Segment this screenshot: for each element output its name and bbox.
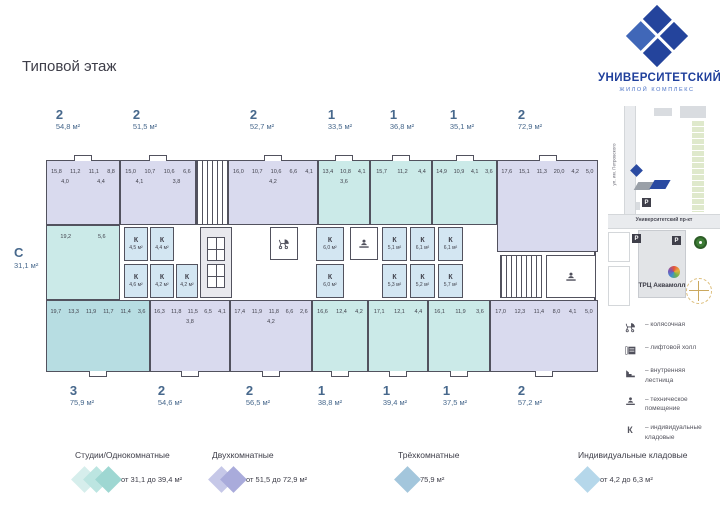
room-area-value: 16,3 xyxy=(154,310,165,316)
map-building xyxy=(608,266,630,306)
storage-unit[interactable]: К6,1 м² xyxy=(410,227,435,261)
rooms-count: 1 xyxy=(390,108,414,121)
diamond-swatches xyxy=(578,470,590,489)
compass-icon xyxy=(686,278,712,304)
room-area-value: 12,3 xyxy=(515,310,526,316)
brand-subtitle: ЖИЛОЙ КОМПЛЕКС xyxy=(598,87,716,93)
type-legend-item: Двухкомнатныеот 51,5 до 72,9 м² xyxy=(212,450,307,489)
storage-area: 6,0 м² xyxy=(323,283,336,288)
room-area-value: 4,0 xyxy=(61,180,69,186)
type-legend-item: Индивидуальные кладовыеот 4,2 до 6,3 м² xyxy=(578,450,687,489)
apartment-label-bottom: 137,5 м² xyxy=(443,384,467,407)
elevator-icon xyxy=(622,343,638,357)
storage-unit[interactable]: К4,5 м² xyxy=(124,227,148,261)
type-legend-range: 75,9 м² xyxy=(420,475,444,484)
apartment-label-top: 254,8 м² xyxy=(56,108,80,131)
room-area-value: 16,1 xyxy=(434,310,445,316)
room-area-value: 10,6 xyxy=(164,170,175,176)
room-area-value: 17,4 xyxy=(234,310,245,316)
room-area-value: 8,8 xyxy=(107,170,115,176)
room-area-value: 10,7 xyxy=(145,170,156,176)
room-area-value: 8,0 xyxy=(553,310,561,316)
legend-text: – колясочная xyxy=(645,320,711,330)
room-area-value: 12,1 xyxy=(394,310,405,316)
apartment-label-bottom: 254,6 м² xyxy=(158,384,182,407)
storage-letter: К xyxy=(392,274,396,281)
apartment-area: 38,8 м² xyxy=(318,399,342,407)
apartment-area: 37,5 м² xyxy=(443,399,467,407)
rooms-count: 3 xyxy=(70,384,94,397)
diamond-swatch-icon xyxy=(574,466,601,493)
apartment-label-top: 136,8 м² xyxy=(390,108,414,131)
type-legend-title: Трёхкомнатные xyxy=(398,450,459,460)
apartment-unit[interactable]: 15,010,710,66,64,13,8 xyxy=(120,160,196,225)
balcony xyxy=(535,371,553,377)
map-street-vertical-label: ул. им. Петровского xyxy=(612,130,617,200)
room-area-value: 16,6 xyxy=(317,310,328,316)
balcony xyxy=(392,155,410,161)
apartment-label-bottom: 256,5 м² xyxy=(246,384,270,407)
room-area-value: 4,1 xyxy=(136,180,144,186)
room-area-value: 5,6 xyxy=(98,235,106,241)
apartment-unit[interactable]: 13,410,84,13,6 xyxy=(318,160,370,225)
room-area-value: 4,2 xyxy=(267,320,275,326)
mall-label: ТРЦ Аквамолл xyxy=(630,282,694,289)
room-area-value: 19,7 xyxy=(51,310,62,316)
balcony xyxy=(335,155,353,161)
stroller-icon xyxy=(622,320,638,334)
apartment-unit[interactable]: 19,25,6 xyxy=(46,225,120,300)
storage-letter: К xyxy=(328,274,332,281)
balcony xyxy=(331,371,349,377)
room-area-value: 3,8 xyxy=(186,320,194,326)
diamond-swatches xyxy=(398,470,410,489)
map-building xyxy=(636,202,640,210)
apartment-area: 57,2 м² xyxy=(518,399,542,407)
room-area-value: 6,6 xyxy=(286,310,294,316)
tech-room xyxy=(350,227,378,260)
room-area-value: 11,9 xyxy=(252,310,262,316)
type-legend-row: от 4,2 до 6,3 м² xyxy=(578,470,687,489)
map-street-horizontal-label: Университетский пр-кт xyxy=(608,217,720,223)
rooms-count: 2 xyxy=(56,108,80,121)
balcony xyxy=(389,371,407,377)
stairs-glyph xyxy=(624,367,637,380)
location-map[interactable]: ул. им. Петровского P Университетский пр… xyxy=(608,106,720,312)
balcony xyxy=(74,155,92,161)
room-area-value: 6,5 xyxy=(204,310,212,316)
plan-legend: – колясочная– лифтовой холл– внутренняя … xyxy=(622,320,718,452)
map-building xyxy=(608,232,630,262)
type-legend-title: Индивидуальные кладовые xyxy=(578,450,687,460)
stroller-icon xyxy=(277,237,291,251)
rooms-count: 1 xyxy=(328,108,352,121)
legend-row: – лифтовой холл xyxy=(622,343,718,357)
room-area-value: 10,7 xyxy=(252,170,263,176)
rooms-count: 1 xyxy=(450,108,474,121)
tech-room xyxy=(546,255,596,298)
apartment-unit[interactable]: 16,010,710,66,64,14,2 xyxy=(228,160,318,225)
type-legend-range: от 4,2 до 6,3 м² xyxy=(600,475,653,484)
apartment-unit[interactable]: 16,111,93,6 xyxy=(428,300,490,372)
apartment-area: 52,7 м² xyxy=(250,123,274,131)
fuel-station-icon xyxy=(694,236,707,249)
room-area-value: 13,4 xyxy=(322,170,333,176)
map-green-strip xyxy=(692,120,704,212)
apartment-unit[interactable]: 14,910,94,13,6 xyxy=(432,160,497,225)
room-area-value: 3,6 xyxy=(340,180,348,186)
storage-area: 4,4 м² xyxy=(155,246,168,251)
apartment-area: 35,1 м² xyxy=(450,123,474,131)
room-area-value: 11,9 xyxy=(86,310,96,316)
balcony xyxy=(264,155,282,161)
storage-letter: К xyxy=(134,237,138,244)
elevator-glyph xyxy=(624,344,637,357)
rooms-count: 2 xyxy=(133,108,157,121)
balcony xyxy=(456,155,474,161)
storage-area: 4,2 м² xyxy=(180,283,193,288)
room-area-value: 4,1 xyxy=(471,170,479,176)
tech-icon xyxy=(622,395,638,409)
apartment-label-top: 252,7 м² xyxy=(250,108,274,131)
room-area-value: 6,6 xyxy=(183,170,191,176)
room-area-value: 4,4 xyxy=(97,180,105,186)
apartment-unit[interactable]: 17,112,14,4 xyxy=(368,300,428,372)
stairs-block xyxy=(500,255,542,298)
storage-unit[interactable]: К5,2 м² xyxy=(410,264,435,298)
room-area-value: 4,2 xyxy=(269,180,277,186)
brand-diamond-icon xyxy=(626,5,688,67)
room-area-value: 12,4 xyxy=(336,310,347,316)
apartment-area: 33,5 м² xyxy=(328,123,352,131)
room-area-value: 10,6 xyxy=(271,170,282,176)
storage-area: 4,6 м² xyxy=(129,283,142,288)
room-area-value: 11,5 xyxy=(188,310,198,316)
apartment-unit[interactable]: 17,411,911,86,62,64,2 xyxy=(230,300,312,372)
apartment-area: 51,5 м² xyxy=(133,123,157,131)
storage-area: 4,2 м² xyxy=(155,283,168,288)
room-area-value: 11,7 xyxy=(103,310,113,316)
storage-area: 5,2 м² xyxy=(416,283,429,288)
balcony xyxy=(262,371,280,377)
legend-text: – индивидуальные кладовые xyxy=(645,423,711,443)
stroller-glyph xyxy=(624,321,637,334)
room-area-value: 4,1 xyxy=(218,310,226,316)
storage-unit[interactable]: К5,3 м² xyxy=(382,264,407,298)
apartment-unit[interactable]: 17,615,111,320,04,25,0 xyxy=(497,160,598,252)
room-area-value: 11,4 xyxy=(121,310,131,316)
diamond-swatches xyxy=(75,470,111,489)
type-legend-row: от 31,1 до 39,4 м² xyxy=(75,470,182,489)
rooms-count: 1 xyxy=(443,384,467,397)
storage-area: 6,1 м² xyxy=(416,246,429,251)
room-area-value: 17,0 xyxy=(495,310,506,316)
rooms-count: 1 xyxy=(383,384,407,397)
page: Типовой этаж УНИВЕРСИТЕТСКИЙ ЖИЛОЙ КОМПЛ… xyxy=(0,0,720,508)
room-area-value: 11,8 xyxy=(171,310,181,316)
room-area-value: 11,2 xyxy=(397,170,407,176)
room-area-value: 5,0 xyxy=(585,310,593,316)
storage-area: 5,1 м² xyxy=(388,246,401,251)
parking-icon: P xyxy=(642,198,651,207)
room-area-value: 15,1 xyxy=(519,170,530,176)
rooms-count: 2 xyxy=(518,108,542,121)
type-legend-title: Двухкомнатные xyxy=(212,450,307,460)
room-area-value: 16,0 xyxy=(233,170,244,176)
type-legend-range: от 51,5 до 72,9 м² xyxy=(246,475,307,484)
brand-name: УНИВЕРСИТЕТСКИЙ xyxy=(598,72,716,85)
map-complex-marker[interactable] xyxy=(632,164,672,194)
room-area-value: 11,8 xyxy=(269,310,279,316)
room-area-value: 4,4 xyxy=(415,310,423,316)
storage-letter: К xyxy=(448,237,452,244)
apartment-area: 54,8 м² xyxy=(56,123,80,131)
legend-row: К– индивидуальные кладовые xyxy=(622,423,718,443)
diamond-swatch-icon xyxy=(394,466,421,493)
room-area-value: 15,0 xyxy=(125,170,136,176)
entry-stairwell xyxy=(196,160,228,225)
apartment-unit[interactable]: 15,711,24,4 xyxy=(370,160,432,225)
balcony xyxy=(181,371,199,377)
storage-letter: К xyxy=(448,274,452,281)
mall-logo-icon xyxy=(668,266,680,278)
room-area-value: 14,9 xyxy=(436,170,447,176)
storage-unit[interactable]: К6,1 м² xyxy=(438,227,463,261)
storage-unit[interactable]: К4,6 м² xyxy=(124,264,148,298)
room-area-value: 3,6 xyxy=(476,310,484,316)
apartment-label-top: 135,1 м² xyxy=(450,108,474,131)
page-title: Типовой этаж xyxy=(22,58,116,75)
apartment-label-top: 133,5 м² xyxy=(328,108,352,131)
room-area-value: 17,6 xyxy=(501,170,512,176)
storage-unit[interactable]: К4,4 м² xyxy=(150,227,174,261)
storage-letter: К xyxy=(160,274,164,281)
storage-unit[interactable]: К4,2 м² xyxy=(176,264,198,298)
storage-letter: К xyxy=(328,237,332,244)
storage-letter: К xyxy=(420,237,424,244)
storage-unit[interactable]: К4,2 м² xyxy=(150,264,174,298)
room-area-value: 11,3 xyxy=(537,170,547,176)
elevator-icon xyxy=(207,237,225,261)
apartment-unit[interactable]: 16,311,811,56,54,13,8 xyxy=(150,300,230,372)
room-area-value: 13,3 xyxy=(68,310,79,316)
rooms-count: 2 xyxy=(250,108,274,121)
apartment-unit[interactable]: 15,811,211,18,84,04,4 xyxy=(46,160,120,225)
apartment-label-bottom: 375,9 м² xyxy=(70,384,94,407)
rooms-count: 1 xyxy=(318,384,342,397)
type-legend-range: от 31,1 до 39,4 м² xyxy=(121,475,182,484)
stroller-room xyxy=(270,227,298,260)
rooms-count: 2 xyxy=(518,384,542,397)
type-legend-item: Трёхкомнатные75,9 м² xyxy=(398,450,459,489)
type-legend-row: 75,9 м² xyxy=(398,470,459,489)
floor-plan[interactable]: 15,811,211,18,84,04,415,010,710,66,64,13… xyxy=(30,160,600,372)
apartment-label-top: 251,5 м² xyxy=(133,108,157,131)
apartment-unit[interactable]: 16,612,44,2 xyxy=(312,300,368,372)
storage-area: 4,5 м² xyxy=(129,246,142,251)
complex-diamond-icon xyxy=(630,164,643,177)
type-legend-row: от 51,5 до 72,9 м² xyxy=(212,470,307,489)
legend-text: – лифтовой холл xyxy=(645,343,711,353)
storage-letter: К xyxy=(392,237,396,244)
tech-icon xyxy=(357,237,371,251)
tech-icon xyxy=(564,270,578,284)
apartment-area: 54,6 м² xyxy=(158,399,182,407)
apartment-area: 36,8 м² xyxy=(390,123,414,131)
type-legend-item: Студии/Однокомнатныеот 31,1 до 39,4 м² xyxy=(75,450,182,489)
stairs-icon xyxy=(622,366,638,380)
apartment-area: 75,9 м² xyxy=(70,399,94,407)
room-area-value: 3,6 xyxy=(138,310,146,316)
room-area-value: 10,8 xyxy=(340,170,351,176)
parking-icon: P xyxy=(672,236,681,245)
room-area-value: 4,1 xyxy=(305,170,313,176)
apartment-area: 39,4 м² xyxy=(383,399,407,407)
room-area-value: 20,0 xyxy=(554,170,565,176)
tech-glyph xyxy=(624,395,637,408)
room-area-value: 11,1 xyxy=(89,170,99,176)
room-area-value: 19,2 xyxy=(60,235,71,241)
storage-letter: К xyxy=(185,274,189,281)
type-legend-title: Студии/Однокомнатные xyxy=(75,450,182,460)
apartment-label-bottom: 138,8 м² xyxy=(318,384,342,407)
room-area-value: 11,4 xyxy=(534,310,544,316)
room-area-value: 3,8 xyxy=(173,180,181,186)
storage-area: 6,1 м² xyxy=(444,246,457,251)
apartment-unit[interactable]: 17,012,311,48,04,15,0 xyxy=(490,300,598,372)
room-area-value: 11,9 xyxy=(455,310,465,316)
apartment-label-top: 272,9 м² xyxy=(518,108,542,131)
parking-icon: P xyxy=(632,234,641,243)
complex-building-blue xyxy=(649,180,670,189)
storage-letter: К xyxy=(134,274,138,281)
room-area-value: 4,2 xyxy=(355,310,363,316)
rooms-count: 2 xyxy=(246,384,270,397)
legend-text: – внутренняя лестница xyxy=(645,366,711,386)
brand-logo: УНИВЕРСИТЕТСКИЙ ЖИЛОЙ КОМПЛЕКС xyxy=(598,6,716,93)
K-icon: К xyxy=(622,423,638,437)
storage-letter: К xyxy=(160,237,164,244)
balcony xyxy=(450,371,468,377)
legend-text: – техническое помещение xyxy=(645,395,711,415)
storage-unit[interactable]: К6,0 м² xyxy=(316,264,344,298)
balcony xyxy=(539,155,557,161)
room-area-value: 3,6 xyxy=(485,170,493,176)
storage-unit[interactable]: К5,7 м² xyxy=(438,264,463,298)
apartment-area: 56,5 м² xyxy=(246,399,270,407)
storage-unit[interactable]: К6,0 м² xyxy=(316,227,344,261)
room-area-value: 2,6 xyxy=(300,310,308,316)
room-area-value: 5,0 xyxy=(586,170,594,176)
legend-row: – техническое помещение xyxy=(622,395,718,415)
map-building xyxy=(654,108,672,116)
elevator-hall xyxy=(200,227,232,298)
room-area-value: 4,2 xyxy=(571,170,579,176)
storage-area: 5,7 м² xyxy=(444,283,457,288)
map-building xyxy=(680,106,706,118)
storage-letter: К xyxy=(420,274,424,281)
room-area-value: 17,1 xyxy=(374,310,385,316)
room-area-value: 11,2 xyxy=(70,170,80,176)
apartment-label-bottom: 139,4 м² xyxy=(383,384,407,407)
apartment-label-bottom: 257,2 м² xyxy=(518,384,542,407)
balcony xyxy=(89,371,107,377)
room-area-value: 4,4 xyxy=(418,170,426,176)
room-area-value: 15,8 xyxy=(51,170,62,176)
storage-area: 5,3 м² xyxy=(388,283,401,288)
elevator-icon xyxy=(207,264,225,288)
storage-area: 6,0 м² xyxy=(323,246,336,251)
room-area-value: 6,6 xyxy=(289,170,297,176)
apartment-area: 72,9 м² xyxy=(518,123,542,131)
rooms-count: 2 xyxy=(158,384,182,397)
apartment-unit[interactable]: 19,713,311,911,711,43,6 xyxy=(46,300,150,372)
room-area-value: 15,7 xyxy=(376,170,387,176)
storage-unit[interactable]: К5,1 м² xyxy=(382,227,407,261)
balcony xyxy=(149,155,167,161)
room-area-value: 10,9 xyxy=(454,170,465,176)
room-area-value: 4,1 xyxy=(358,170,366,176)
legend-row: – колясочная xyxy=(622,320,718,334)
diamond-swatches xyxy=(212,470,236,489)
legend-row: – внутренняя лестница xyxy=(622,366,718,386)
room-area-value: 4,1 xyxy=(569,310,577,316)
